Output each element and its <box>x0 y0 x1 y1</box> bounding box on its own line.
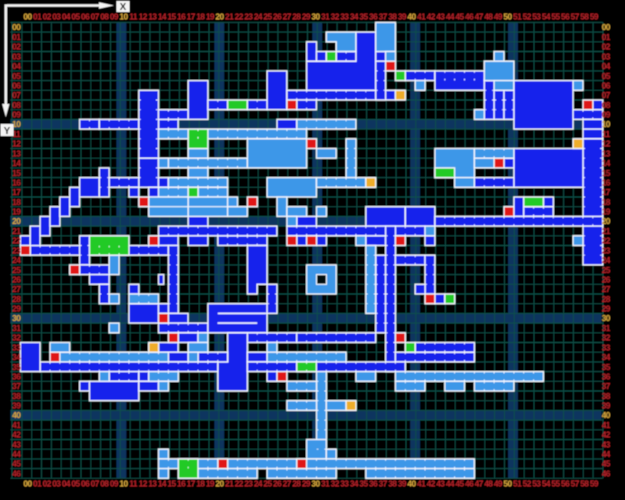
svg-text:00: 00 <box>602 22 611 32</box>
svg-text:33: 33 <box>340 12 349 22</box>
svg-text:06: 06 <box>12 80 21 90</box>
svg-text:43: 43 <box>12 439 21 449</box>
svg-text:33: 33 <box>602 342 611 352</box>
svg-text:21: 21 <box>602 226 611 236</box>
svg-text:44: 44 <box>446 12 455 22</box>
svg-text:05: 05 <box>71 479 80 489</box>
svg-text:00: 00 <box>12 22 21 32</box>
svg-text:08: 08 <box>12 100 21 110</box>
svg-text:16: 16 <box>177 12 186 22</box>
svg-text:54: 54 <box>542 479 551 489</box>
svg-text:26: 26 <box>273 12 282 22</box>
svg-text:14: 14 <box>158 479 167 489</box>
svg-text:29: 29 <box>602 304 611 314</box>
svg-text:29: 29 <box>302 479 311 489</box>
svg-text:22: 22 <box>235 479 244 489</box>
svg-text:25: 25 <box>12 265 21 275</box>
svg-text:25: 25 <box>263 12 272 22</box>
svg-text:11: 11 <box>129 12 138 22</box>
svg-text:13: 13 <box>602 148 611 158</box>
svg-text:39: 39 <box>602 401 611 411</box>
svg-text:56: 56 <box>561 479 570 489</box>
svg-text:13: 13 <box>148 12 157 22</box>
svg-text:33: 33 <box>340 479 349 489</box>
svg-text:08: 08 <box>100 12 109 22</box>
svg-text:53: 53 <box>532 12 541 22</box>
svg-text:13: 13 <box>12 148 21 158</box>
svg-text:08: 08 <box>100 479 109 489</box>
svg-text:23: 23 <box>244 12 253 22</box>
svg-text:55: 55 <box>551 479 560 489</box>
svg-text:36: 36 <box>12 371 21 381</box>
svg-text:19: 19 <box>602 207 611 217</box>
svg-text:12: 12 <box>139 12 148 22</box>
svg-text:04: 04 <box>602 61 611 71</box>
svg-text:29: 29 <box>302 12 311 22</box>
svg-text:30: 30 <box>602 313 611 323</box>
svg-text:36: 36 <box>369 479 378 489</box>
svg-text:43: 43 <box>436 12 445 22</box>
svg-text:31: 31 <box>12 323 21 333</box>
svg-text:42: 42 <box>12 430 21 440</box>
svg-text:35: 35 <box>359 12 368 22</box>
svg-text:42: 42 <box>427 12 436 22</box>
svg-text:01: 01 <box>33 12 42 22</box>
svg-text:50: 50 <box>503 479 512 489</box>
svg-text:50: 50 <box>503 12 512 22</box>
svg-text:32: 32 <box>331 12 340 22</box>
svg-text:46: 46 <box>602 468 611 478</box>
svg-text:48: 48 <box>484 12 493 22</box>
svg-text:26: 26 <box>273 479 282 489</box>
svg-text:02: 02 <box>602 42 611 52</box>
svg-text:42: 42 <box>427 479 436 489</box>
svg-text:24: 24 <box>254 479 263 489</box>
svg-text:22: 22 <box>235 12 244 22</box>
svg-text:X: X <box>120 2 127 13</box>
svg-text:06: 06 <box>81 12 90 22</box>
svg-text:51: 51 <box>513 479 522 489</box>
svg-text:15: 15 <box>167 479 176 489</box>
svg-text:51: 51 <box>513 12 522 22</box>
svg-text:17: 17 <box>187 12 196 22</box>
svg-text:40: 40 <box>602 410 611 420</box>
svg-text:28: 28 <box>292 12 301 22</box>
svg-text:14: 14 <box>12 158 21 168</box>
svg-text:02: 02 <box>43 12 52 22</box>
svg-text:16: 16 <box>602 177 611 187</box>
svg-text:10: 10 <box>602 119 611 129</box>
svg-text:20: 20 <box>12 216 21 226</box>
svg-text:21: 21 <box>225 12 234 22</box>
svg-text:09: 09 <box>110 12 119 22</box>
svg-text:30: 30 <box>12 313 21 323</box>
svg-text:58: 58 <box>580 479 589 489</box>
svg-text:26: 26 <box>12 274 21 284</box>
svg-text:34: 34 <box>12 352 21 362</box>
svg-text:27: 27 <box>12 284 21 294</box>
svg-text:00: 00 <box>23 12 32 22</box>
svg-text:46: 46 <box>465 479 474 489</box>
svg-text:59: 59 <box>590 479 599 489</box>
svg-text:27: 27 <box>602 284 611 294</box>
svg-text:47: 47 <box>475 12 484 22</box>
svg-text:55: 55 <box>551 12 560 22</box>
svg-text:02: 02 <box>43 479 52 489</box>
svg-text:08: 08 <box>602 100 611 110</box>
svg-text:38: 38 <box>12 391 21 401</box>
svg-text:04: 04 <box>62 12 71 22</box>
svg-text:09: 09 <box>602 110 611 120</box>
svg-text:04: 04 <box>62 479 71 489</box>
svg-text:12: 12 <box>139 479 148 489</box>
svg-text:37: 37 <box>602 381 611 391</box>
svg-text:46: 46 <box>465 12 474 22</box>
svg-text:02: 02 <box>12 42 21 52</box>
svg-text:01: 01 <box>33 479 42 489</box>
svg-text:41: 41 <box>602 420 611 430</box>
svg-text:58: 58 <box>580 12 589 22</box>
svg-text:39: 39 <box>398 12 407 22</box>
svg-text:37: 37 <box>12 381 21 391</box>
svg-text:35: 35 <box>602 362 611 372</box>
svg-text:03: 03 <box>602 51 611 61</box>
svg-text:09: 09 <box>110 479 119 489</box>
svg-text:45: 45 <box>602 459 611 469</box>
svg-text:16: 16 <box>12 177 21 187</box>
svg-text:28: 28 <box>602 294 611 304</box>
svg-text:43: 43 <box>602 439 611 449</box>
svg-text:01: 01 <box>12 32 21 42</box>
svg-text:24: 24 <box>602 255 611 265</box>
svg-text:31: 31 <box>321 12 330 22</box>
svg-text:18: 18 <box>196 479 205 489</box>
svg-text:21: 21 <box>12 226 21 236</box>
svg-text:00: 00 <box>23 479 32 489</box>
svg-text:05: 05 <box>12 71 21 81</box>
svg-text:47: 47 <box>475 479 484 489</box>
svg-text:37: 37 <box>379 12 388 22</box>
svg-text:23: 23 <box>244 479 253 489</box>
svg-text:05: 05 <box>602 71 611 81</box>
svg-text:57: 57 <box>571 12 580 22</box>
svg-text:38: 38 <box>602 391 611 401</box>
svg-text:24: 24 <box>12 255 21 265</box>
svg-text:40: 40 <box>407 12 416 22</box>
svg-text:16: 16 <box>177 479 186 489</box>
svg-text:30: 30 <box>311 479 320 489</box>
svg-text:03: 03 <box>12 51 21 61</box>
svg-text:13: 13 <box>148 479 157 489</box>
svg-text:35: 35 <box>359 479 368 489</box>
svg-text:41: 41 <box>417 12 426 22</box>
svg-text:17: 17 <box>602 187 611 197</box>
svg-text:32: 32 <box>602 333 611 343</box>
svg-text:10: 10 <box>119 12 128 22</box>
svg-text:38: 38 <box>388 479 397 489</box>
svg-text:44: 44 <box>446 479 455 489</box>
svg-text:56: 56 <box>561 12 570 22</box>
svg-text:21: 21 <box>225 479 234 489</box>
svg-text:34: 34 <box>350 479 359 489</box>
svg-text:07: 07 <box>602 90 611 100</box>
svg-text:26: 26 <box>602 274 611 284</box>
svg-text:11: 11 <box>12 129 21 139</box>
svg-text:22: 22 <box>602 236 611 246</box>
svg-text:34: 34 <box>602 352 611 362</box>
svg-text:33: 33 <box>12 342 21 352</box>
svg-text:35: 35 <box>12 362 21 372</box>
svg-text:25: 25 <box>602 265 611 275</box>
svg-text:29: 29 <box>12 304 21 314</box>
svg-text:41: 41 <box>417 479 426 489</box>
svg-text:28: 28 <box>12 294 21 304</box>
svg-text:49: 49 <box>494 479 503 489</box>
svg-text:09: 09 <box>12 110 21 120</box>
svg-text:45: 45 <box>12 459 21 469</box>
svg-text:53: 53 <box>532 479 541 489</box>
svg-text:45: 45 <box>455 479 464 489</box>
svg-text:36: 36 <box>602 371 611 381</box>
svg-text:27: 27 <box>283 12 292 22</box>
svg-text:44: 44 <box>12 449 21 459</box>
svg-text:12: 12 <box>602 139 611 149</box>
svg-text:38: 38 <box>388 12 397 22</box>
svg-text:19: 19 <box>206 12 215 22</box>
svg-text:34: 34 <box>350 12 359 22</box>
svg-text:42: 42 <box>602 430 611 440</box>
svg-text:12: 12 <box>12 139 21 149</box>
svg-text:41: 41 <box>12 420 21 430</box>
svg-text:32: 32 <box>331 479 340 489</box>
svg-text:39: 39 <box>398 479 407 489</box>
svg-text:31: 31 <box>602 323 611 333</box>
svg-text:06: 06 <box>81 479 90 489</box>
svg-text:49: 49 <box>494 12 503 22</box>
svg-text:22: 22 <box>12 236 21 246</box>
svg-text:27: 27 <box>283 479 292 489</box>
svg-text:19: 19 <box>12 207 21 217</box>
svg-text:59: 59 <box>590 12 599 22</box>
svg-text:Y: Y <box>4 126 11 137</box>
svg-text:11: 11 <box>129 479 138 489</box>
svg-text:07: 07 <box>12 90 21 100</box>
svg-text:28: 28 <box>292 479 301 489</box>
svg-text:19: 19 <box>206 479 215 489</box>
svg-text:17: 17 <box>187 479 196 489</box>
svg-text:54: 54 <box>542 12 551 22</box>
svg-text:11: 11 <box>602 129 611 139</box>
svg-text:14: 14 <box>602 158 611 168</box>
svg-text:23: 23 <box>12 245 21 255</box>
svg-text:10: 10 <box>119 479 128 489</box>
svg-text:25: 25 <box>263 479 272 489</box>
svg-text:20: 20 <box>602 216 611 226</box>
svg-text:14: 14 <box>158 12 167 22</box>
svg-text:18: 18 <box>196 12 205 22</box>
svg-text:24: 24 <box>254 12 263 22</box>
svg-text:39: 39 <box>12 401 21 411</box>
svg-text:57: 57 <box>571 479 580 489</box>
svg-text:03: 03 <box>52 12 61 22</box>
svg-text:43: 43 <box>436 479 445 489</box>
svg-text:07: 07 <box>91 12 100 22</box>
svg-text:20: 20 <box>215 479 224 489</box>
svg-text:40: 40 <box>12 410 21 420</box>
svg-text:40: 40 <box>407 479 416 489</box>
svg-text:32: 32 <box>12 333 21 343</box>
svg-text:52: 52 <box>523 12 532 22</box>
svg-text:01: 01 <box>602 32 611 42</box>
svg-text:46: 46 <box>12 468 21 478</box>
svg-text:15: 15 <box>602 168 611 178</box>
svg-text:52: 52 <box>523 479 532 489</box>
svg-text:23: 23 <box>602 245 611 255</box>
svg-text:36: 36 <box>369 12 378 22</box>
svg-text:18: 18 <box>602 197 611 207</box>
svg-text:48: 48 <box>484 479 493 489</box>
svg-text:15: 15 <box>167 12 176 22</box>
svg-text:45: 45 <box>455 12 464 22</box>
svg-text:03: 03 <box>52 479 61 489</box>
svg-text:04: 04 <box>12 61 21 71</box>
svg-text:15: 15 <box>12 168 21 178</box>
svg-text:06: 06 <box>602 80 611 90</box>
svg-text:05: 05 <box>71 12 80 22</box>
svg-text:44: 44 <box>602 449 611 459</box>
svg-text:18: 18 <box>12 197 21 207</box>
svg-text:37: 37 <box>379 479 388 489</box>
svg-text:07: 07 <box>91 479 100 489</box>
svg-text:31: 31 <box>321 479 330 489</box>
svg-text:17: 17 <box>12 187 21 197</box>
svg-text:20: 20 <box>215 12 224 22</box>
svg-text:30: 30 <box>311 12 320 22</box>
